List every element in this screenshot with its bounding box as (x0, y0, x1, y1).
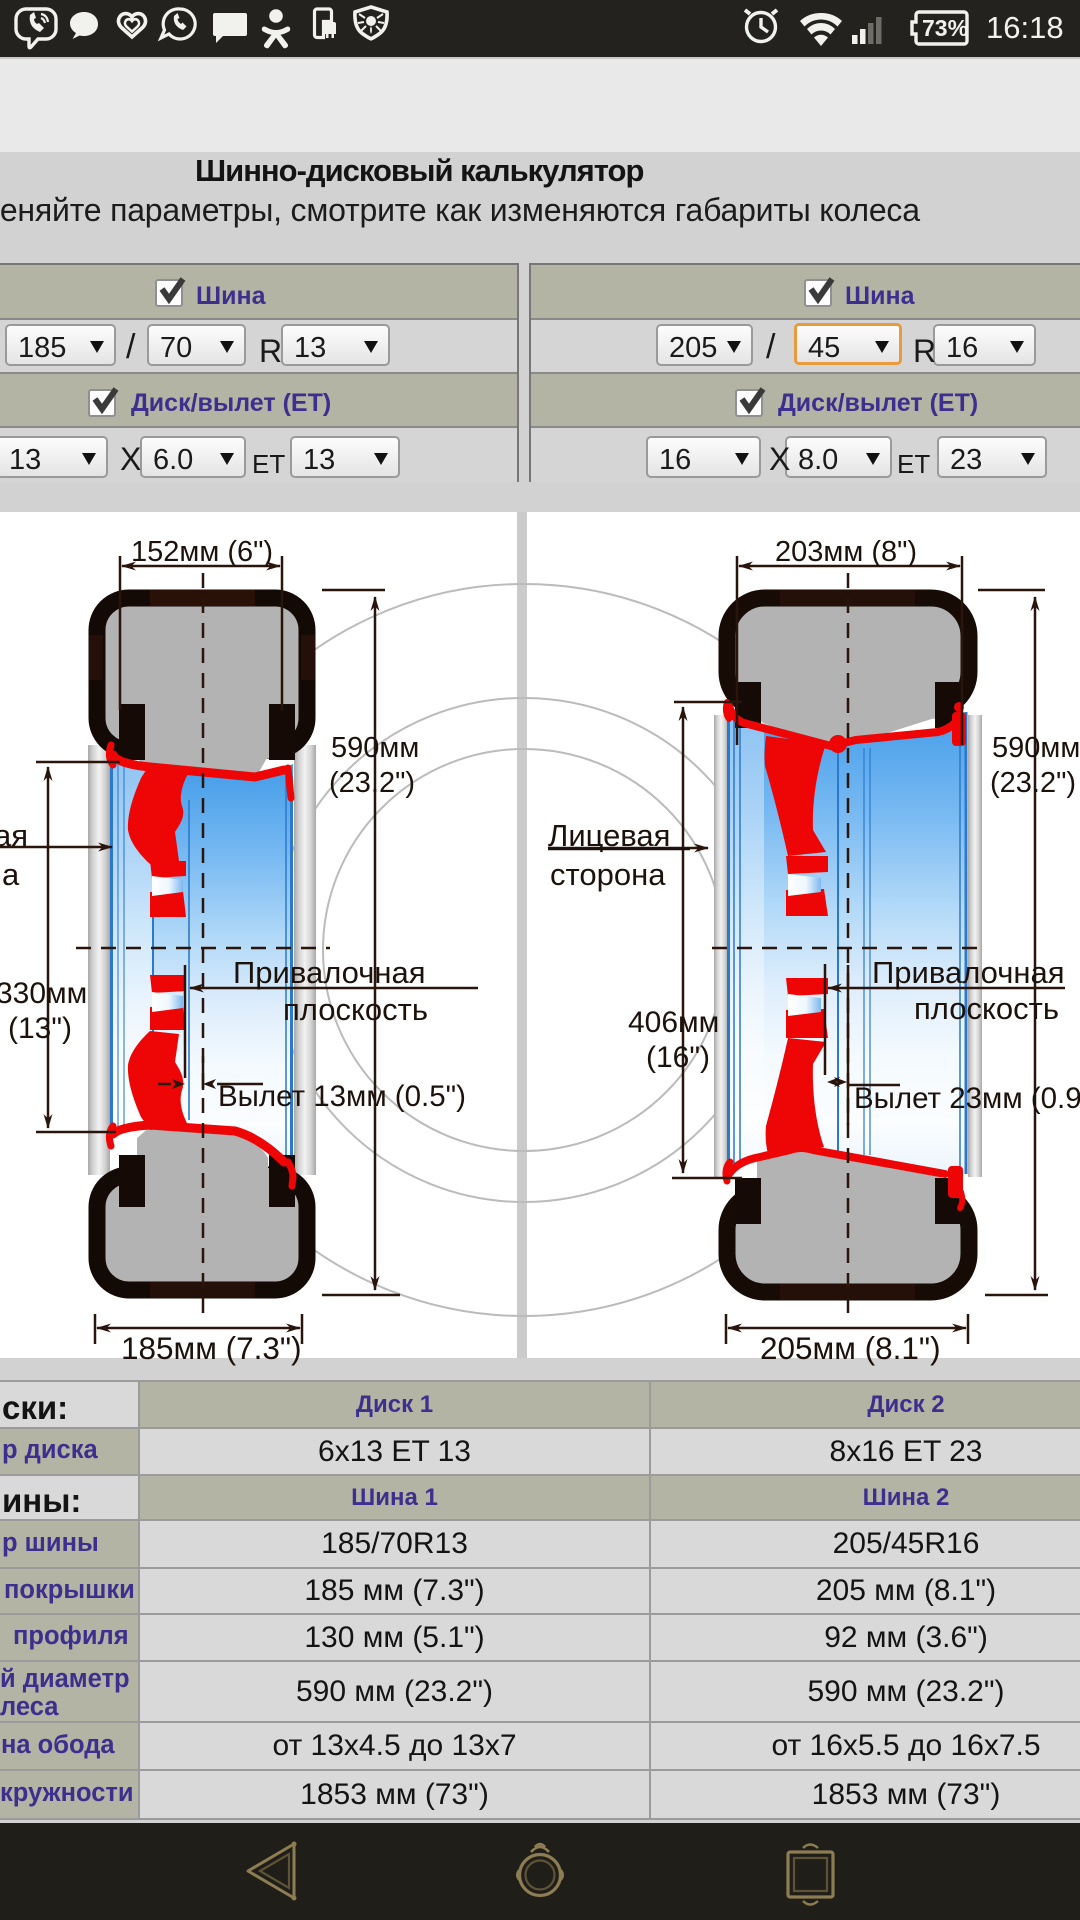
svg-text:(16"): (16") (646, 1041, 710, 1074)
svg-text:16:18: 16:18 (986, 10, 1064, 45)
svg-text:203мм (8"): 203мм (8") (775, 536, 917, 568)
svg-text:590мм: 590мм (992, 732, 1080, 764)
svg-text:406мм: 406мм (628, 1006, 719, 1039)
svg-text:205мм (8.1"): 205мм (8.1") (760, 1330, 941, 1366)
svg-text:152мм (6"): 152мм (6") (131, 536, 273, 568)
svg-text:а: а (2, 857, 20, 892)
svg-text:185мм (7.3"): 185мм (7.3") (121, 1330, 302, 1366)
svg-text:Вылет 13мм (0.5"): Вылет 13мм (0.5") (218, 1080, 466, 1113)
svg-text:590мм: 590мм (331, 732, 419, 764)
svg-text:Вылет 23мм (0.9: Вылет 23мм (0.9 (854, 1082, 1080, 1115)
svg-text:(13"): (13") (8, 1012, 72, 1045)
svg-text:Привалочная: Привалочная (872, 955, 1065, 990)
svg-text:73%: 73% (922, 15, 968, 41)
svg-text:плоскость: плоскость (914, 991, 1059, 1026)
svg-text:330мм: 330мм (0, 977, 87, 1010)
svg-text:(23.2"): (23.2") (990, 767, 1076, 799)
svg-text:(23.2"): (23.2") (329, 767, 415, 799)
svg-text:Привалочная: Привалочная (233, 955, 426, 990)
svg-text:плоскость: плоскость (283, 992, 428, 1027)
svg-text:сторона: сторона (550, 857, 666, 892)
svg-text:ая: ая (0, 818, 28, 853)
